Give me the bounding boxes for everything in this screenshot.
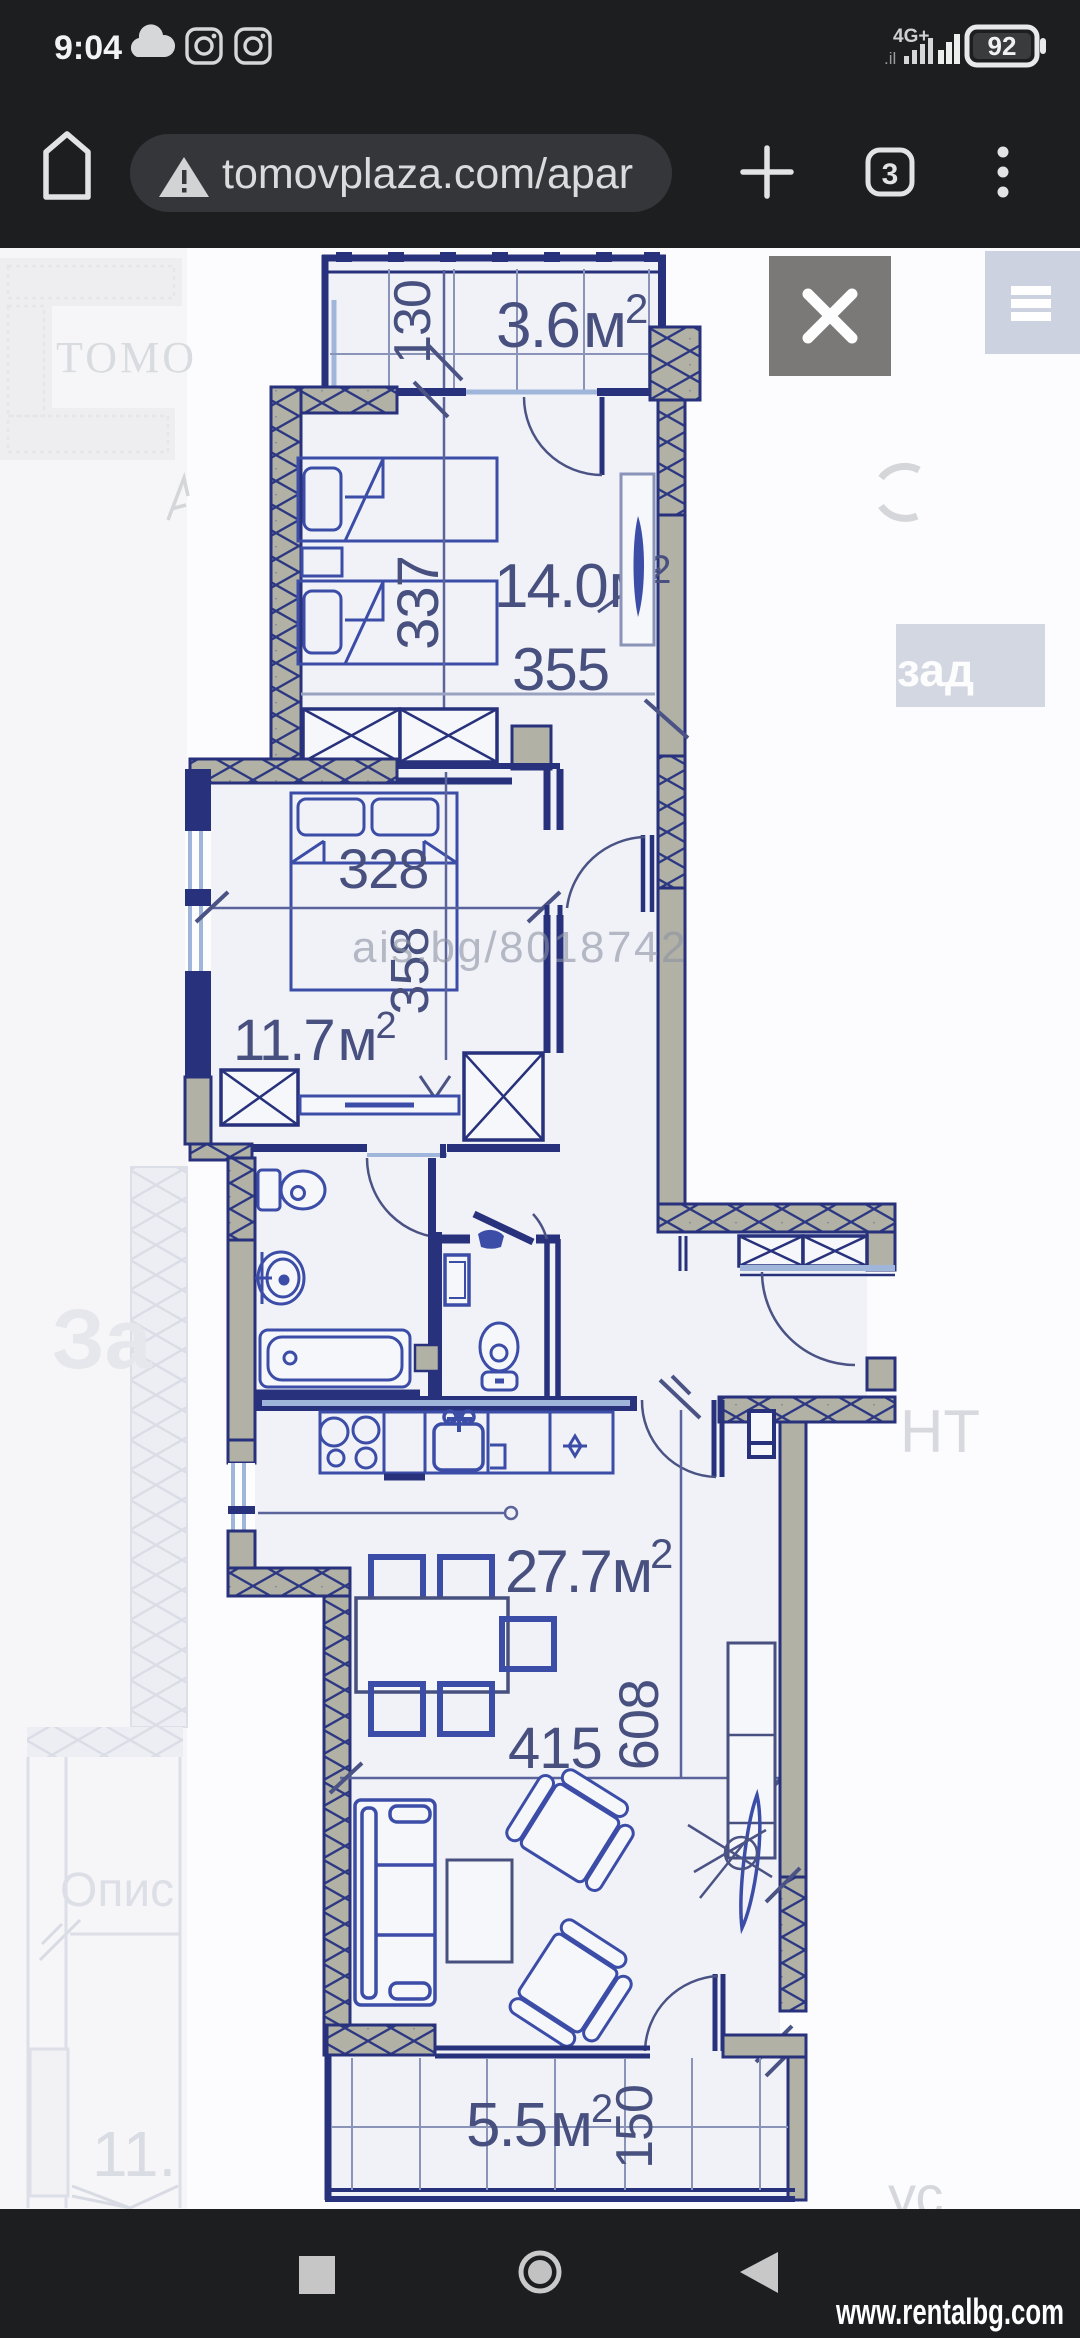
svg-text:337: 337	[386, 556, 451, 650]
svg-text:608: 608	[607, 1680, 670, 1770]
svg-text:150: 150	[606, 2085, 664, 2169]
svg-text:.il: .il	[884, 49, 896, 68]
svg-text:Опис: Опис	[60, 1864, 174, 1917]
svg-text:ТОМО: ТОМО	[56, 333, 197, 382]
svg-text:3: 3	[882, 158, 899, 191]
svg-text:11.: 11.	[92, 2118, 176, 2190]
svg-text:За: За	[52, 1292, 153, 1386]
svg-text:НТ: НТ	[900, 1398, 980, 1465]
svg-text:27.7м2: 27.7м2	[505, 1530, 672, 1605]
svg-text:зад: зад	[897, 644, 974, 696]
svg-text:www.rentalbg.com: www.rentalbg.com	[835, 2291, 1064, 2332]
svg-text:tomovplaza.com/apar: tomovplaza.com/apar	[222, 150, 633, 198]
svg-text:3.6м2: 3.6м2	[496, 285, 647, 361]
svg-text:ais.bg/8018742: ais.bg/8018742	[352, 923, 688, 972]
svg-text:328: 328	[338, 837, 428, 900]
svg-text:415: 415	[508, 1716, 602, 1781]
svg-text:5.5м2: 5.5м2	[466, 2087, 612, 2160]
svg-text:11.7м2: 11.7м2	[233, 1005, 395, 1073]
svg-text:92: 92	[988, 31, 1017, 61]
svg-text:4G+: 4G+	[893, 26, 929, 47]
svg-text:9:04: 9:04	[54, 29, 122, 67]
